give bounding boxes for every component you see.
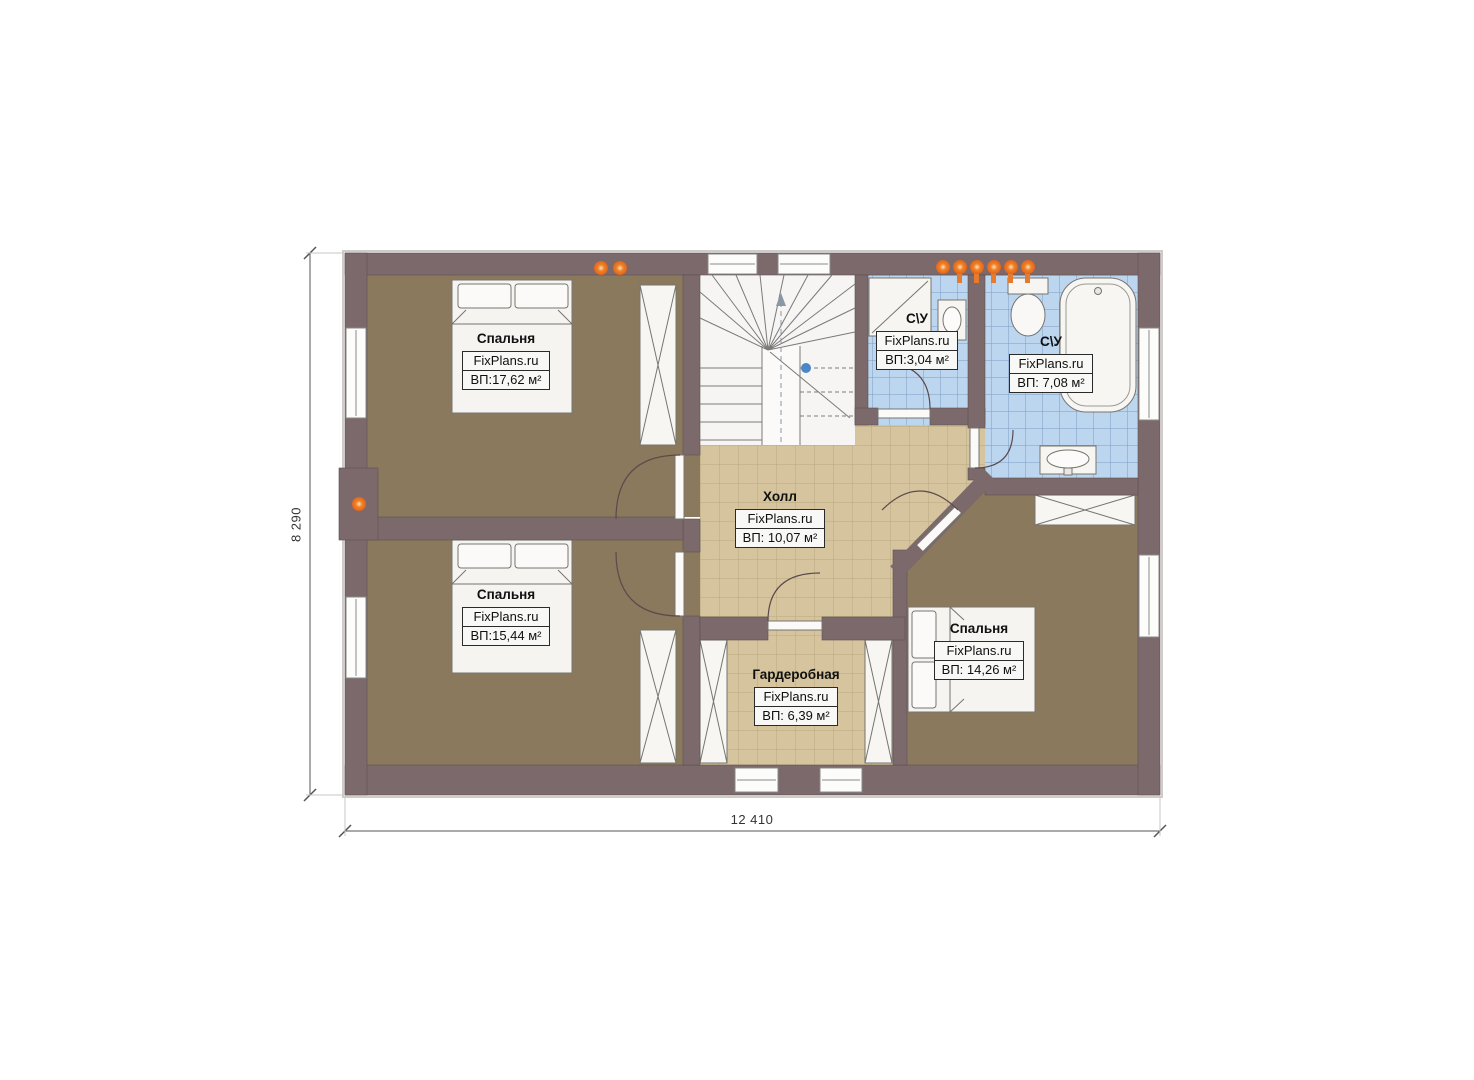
wall-hall-wardrobe-a: [700, 617, 768, 640]
wall-center-lower: [683, 616, 700, 765]
wall-between-left-bedrooms: [367, 517, 683, 540]
orange-dot: [594, 261, 608, 275]
orange-dot: [1004, 260, 1018, 274]
orange-dot: [936, 260, 950, 274]
radiator-stem: [974, 273, 979, 283]
orange-dot: [1021, 260, 1035, 274]
window-left-top: [346, 328, 366, 418]
orange-dot: [987, 260, 1001, 274]
wall-center-upper: [683, 275, 700, 455]
wardrobe-bedroom-bottom-left: [640, 630, 676, 763]
wall-hall-bedroom-right: [893, 550, 907, 765]
bathtub: [1060, 278, 1136, 412]
window-top-stairs-right: [778, 254, 830, 274]
radiator-stem: [1025, 273, 1030, 283]
window-bottom-right: [820, 768, 862, 792]
orange-dot: [613, 261, 627, 275]
wall-between-baths: [968, 275, 985, 428]
wall-hall-wardrobe-b: [822, 617, 905, 640]
orange-dot: [953, 260, 967, 274]
wardrobe-room-left-closet: [700, 640, 727, 763]
chimney-orange-dot: [352, 497, 366, 511]
window-top-stairs-left: [708, 254, 757, 274]
window-right-bottom: [1139, 555, 1159, 637]
bed-top-left: [452, 280, 572, 413]
dimension-height: 8 290: [289, 495, 304, 555]
shower: [869, 278, 931, 336]
radiator-stem: [957, 273, 962, 283]
wall-smallbath-bottom-a: [855, 408, 878, 425]
radiator-stem: [1008, 273, 1013, 283]
bed-bottom-left: [452, 540, 572, 673]
wardrobe-room-right-closet: [865, 640, 892, 763]
dimension-width: 12 410: [722, 812, 782, 827]
wall-bath-bedroom: [985, 478, 1138, 495]
orange-dot: [970, 260, 984, 274]
window-right-top: [1139, 328, 1159, 420]
wardrobe-bedroom-top-left: [640, 285, 676, 445]
wardrobe-bedroom-right: [1035, 495, 1135, 525]
sink-small-bath: [938, 300, 966, 340]
window-bottom-left: [735, 768, 778, 792]
floor-plan-canvas: [0, 0, 1474, 1080]
radiator-stem: [991, 273, 996, 283]
sink-large-bath: [1040, 446, 1096, 475]
bed-right: [908, 607, 1035, 712]
toilet: [1008, 278, 1048, 336]
wall-stairs-bath: [855, 275, 868, 425]
floor-plan-page: Спальня FixPlans.ru ВП:17,62 м² Спальня …: [0, 0, 1474, 1080]
stair-marker-dot: [801, 363, 811, 373]
window-left-bottom: [346, 597, 366, 678]
wall-center-mid: [683, 519, 700, 552]
